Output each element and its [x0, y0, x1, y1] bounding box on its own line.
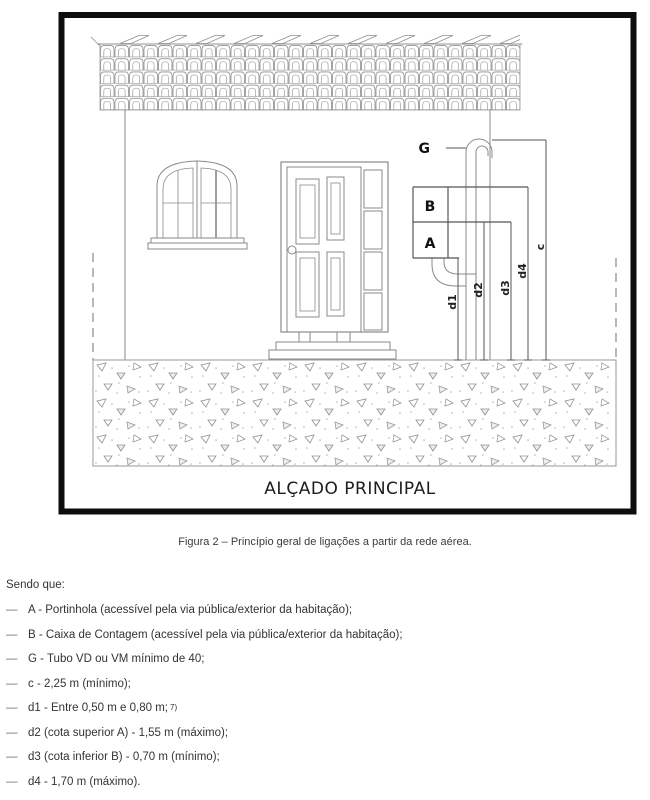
label-a: A — [425, 236, 436, 252]
label-d2: d2 — [472, 282, 485, 298]
legend-item-c: — c - 2,25 m (mínimo); — [6, 678, 642, 690]
dash-icon: — — [6, 727, 28, 739]
dash-icon: — — [6, 629, 28, 641]
label-c: c — [534, 244, 547, 251]
legend-item-text: d3 (cota inferior B) - 0,70 m (mínimo); — [28, 751, 220, 763]
legend-item-d3: — d3 (cota inferior B) - 0,70 m (mínimo)… — [6, 751, 642, 763]
dash-icon: — — [6, 678, 28, 690]
legend-item-text: c - 2,25 m (mínimo); — [28, 678, 131, 690]
legend-item-text: d2 (cota superior A) - 1,55 m (máximo); — [28, 727, 228, 739]
elevation-drawing-svg: G B A d1 d2 d3 d4 c ALÇADO PRINCIPAL — [0, 0, 650, 525]
roof-tiles — [100, 44, 520, 110]
label-d1: d1 — [446, 294, 459, 310]
legend-item-g: — G - Tubo VD ou VM mínimo de 40; — [6, 653, 642, 665]
legend-item-text: G - Tubo VD ou VM mínimo de 40; — [28, 653, 204, 665]
legend-intro: Sendo que: — [6, 579, 642, 591]
dash-icon: — — [6, 653, 28, 665]
ground-hatch — [93, 360, 616, 466]
legend-item-a: — A - Portinhola (acessível pela via púb… — [6, 604, 642, 616]
dash-icon: — — [6, 604, 28, 616]
label-d3: d3 — [499, 280, 512, 296]
figure-2-drawing: G B A d1 d2 d3 d4 c ALÇADO PRINCIPAL — [0, 0, 650, 525]
roof-ridge-caps — [118, 33, 520, 44]
legend-item-b: — B - Caixa de Contagem (acessível pela … — [6, 629, 642, 641]
label-g: G — [419, 141, 431, 157]
legend-item-d2: — d2 (cota superior A) - 1,55 m (máximo)… — [6, 727, 642, 739]
dash-icon: — — [6, 751, 28, 763]
dash-icon: — — [6, 702, 28, 714]
footnote-ref: 7) — [170, 702, 177, 714]
legend-item-text: B - Caixa de Contagem (acessível pela vi… — [28, 629, 403, 641]
label-d4: d4 — [516, 263, 529, 279]
roof — [91, 33, 522, 110]
label-b: B — [425, 199, 436, 215]
figure-caption: Figura 2 – Princípio geral de ligações a… — [0, 536, 650, 548]
legend-item-text: d1 - Entre 0,50 m e 0,80 m; — [28, 702, 168, 714]
legend-item-d4: — d4 - 1,70 m (máximo). — [6, 776, 642, 788]
drawing-title: ALÇADO PRINCIPAL — [264, 479, 435, 499]
dash-icon: — — [6, 776, 28, 788]
legend-item-d1: — d1 - Entre 0,50 m e 0,80 m; 7) — [6, 702, 642, 714]
legend: Sendo que: — A - Portinhola (acessível p… — [6, 579, 642, 800]
legend-item-text: A - Portinhola (acessível pela via públi… — [28, 604, 352, 616]
legend-item-text: d4 - 1,70 m (máximo). — [28, 776, 140, 788]
